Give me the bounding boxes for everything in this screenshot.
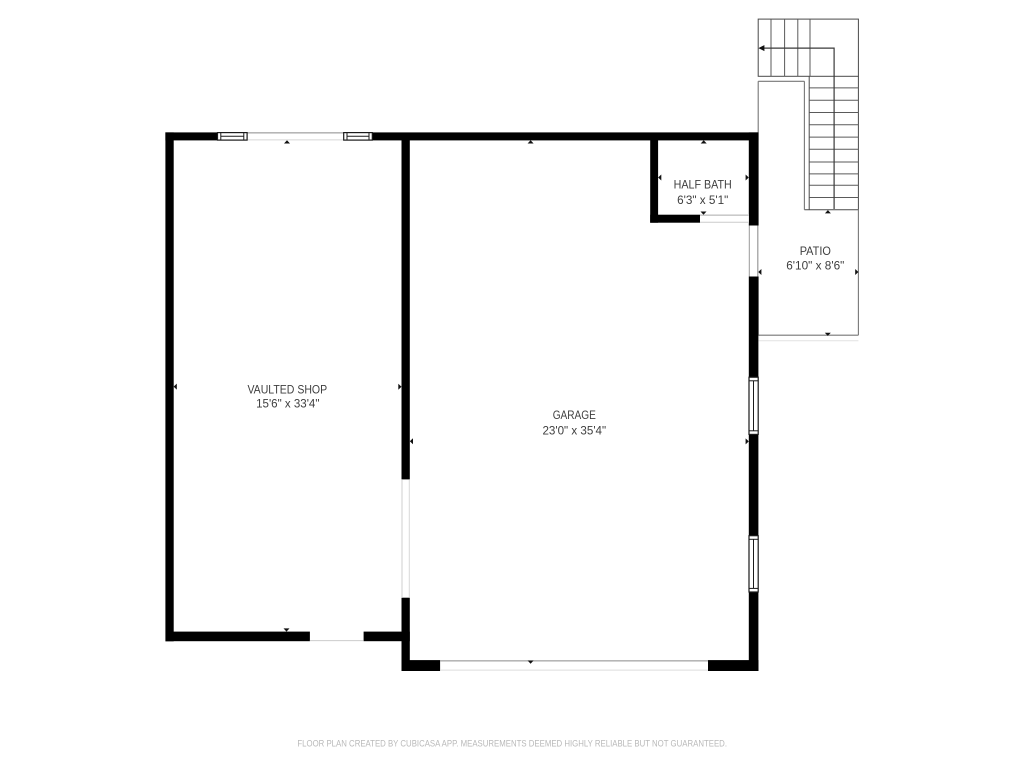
svg-text:HALF BATH: HALF BATH: [674, 178, 732, 192]
svg-text:6'10" x 8'6": 6'10" x 8'6": [786, 259, 844, 273]
svg-text:6'3" x 5'1": 6'3" x 5'1": [677, 193, 728, 207]
svg-text:VAULTED SHOP: VAULTED SHOP: [247, 382, 327, 396]
svg-text:15'6" x 33'4": 15'6" x 33'4": [256, 397, 319, 411]
svg-text:FLOOR PLAN CREATED BY CUBICASA: FLOOR PLAN CREATED BY CUBICASA APP. MEAS…: [297, 739, 727, 749]
svg-text:23'0" x 35'4": 23'0" x 35'4": [542, 423, 606, 437]
svg-text:PATIO: PATIO: [800, 244, 831, 258]
svg-text:GARAGE: GARAGE: [553, 408, 596, 422]
